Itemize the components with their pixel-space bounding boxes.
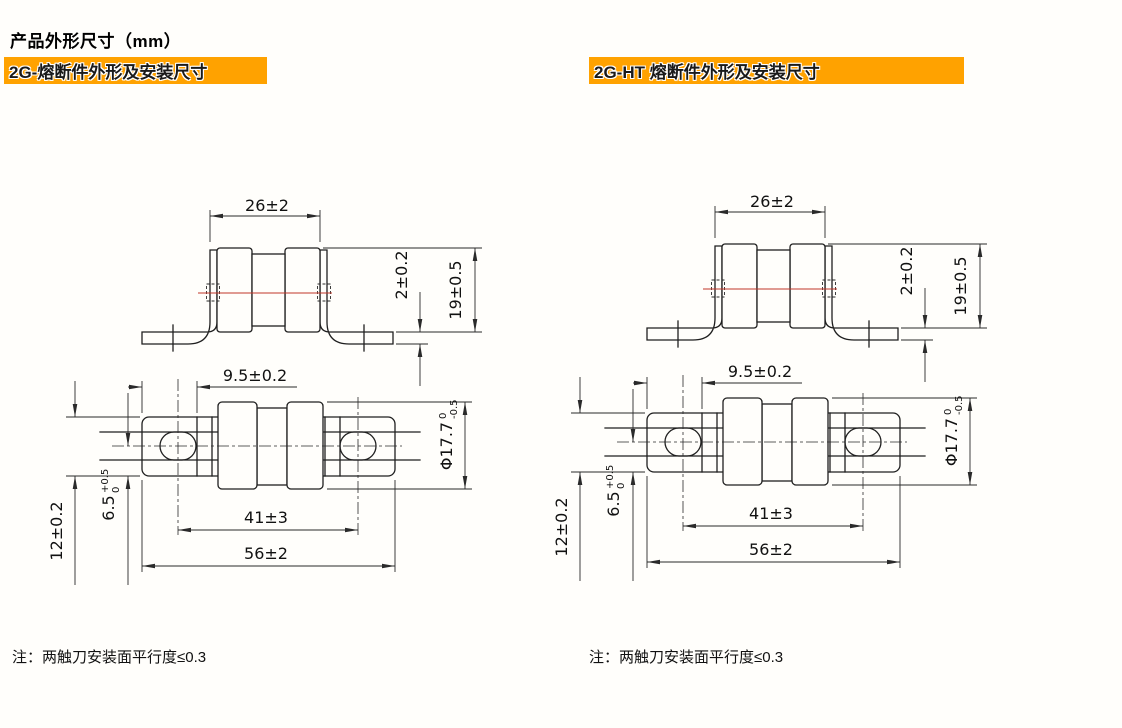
fuse-front-drawing — [142, 248, 393, 351]
fuse-tube — [762, 404, 792, 481]
fuse-body-middle — [757, 250, 790, 322]
dim-label-overall-length: 56±2 — [749, 540, 793, 559]
section-header-2g-ht: 2G-HT 熔断件外形及安装尺寸 — [589, 57, 964, 84]
dim-label-hole-span: 41±3 — [244, 508, 288, 527]
fuse-end-cap-right — [285, 248, 320, 332]
dim-label-hole-edge-offset: 9.5±0.2 — [728, 362, 792, 381]
dim-label-hole-span: 41±3 — [749, 504, 793, 523]
svg-text:0: 0 — [616, 483, 627, 489]
svg-text:0: 0 — [111, 487, 122, 493]
svg-text:6.5: 6.5 — [604, 491, 623, 516]
dim-label-hole-center-offset: 6.5 +0.5 0 — [604, 465, 627, 517]
bracket-blade-right — [320, 250, 393, 344]
dim-label-hole-edge-offset: 9.5±0.2 — [223, 366, 287, 385]
dim-label-body-width: 26±2 — [750, 192, 794, 211]
dim-label-blade-thickness: 2±0.2 — [392, 250, 411, 299]
dim-label-diameter: Φ17.7 0 -0.5 — [437, 399, 460, 470]
dim-label-blade-thickness: 2±0.2 — [897, 246, 916, 295]
section-header-2g: 2G-熔断件外形及安装尺寸 — [4, 57, 267, 84]
section-header-2g-label: 2G-熔断件外形及安装尺寸 — [9, 58, 207, 83]
svg-text:0: 0 — [438, 413, 449, 419]
dim-label-height: 19±0.5 — [446, 260, 465, 319]
svg-text:+0.5: +0.5 — [605, 465, 616, 489]
svg-text:-0.5: -0.5 — [449, 399, 460, 419]
fuse-ring-left — [218, 402, 257, 489]
note-2g: 注：两触刀安装面平行度≤0.3 — [12, 646, 206, 667]
dim-label-hole-center-offset: 6.5 +0.5 0 — [99, 469, 122, 521]
bracket-blade-right — [825, 246, 898, 340]
fuse-tube — [257, 408, 287, 485]
fuse-ring-right — [287, 402, 323, 489]
fuse-end-cap-right — [790, 244, 825, 328]
svg-text:Φ17.7: Φ17.7 — [942, 418, 961, 466]
dim-label-diameter: Φ17.7 0 -0.5 — [942, 395, 965, 466]
svg-text:+0.5: +0.5 — [100, 469, 111, 493]
section-header-2g-ht-label: 2G-HT 熔断件外形及安装尺寸 — [594, 58, 820, 83]
top-view: 9.5±0.2 Φ17.7 0 -0.5 41±3 56±2 — [555, 349, 995, 599]
svg-text:0: 0 — [943, 409, 954, 415]
note-2g-ht: 注：两触刀安装面平行度≤0.3 — [589, 646, 783, 667]
svg-text:Φ17.7: Φ17.7 — [437, 422, 456, 470]
bracket-blade-left — [142, 250, 217, 344]
fuse-front-drawing — [647, 244, 898, 347]
page-title: 产品外形尺寸（mm） — [10, 27, 181, 52]
fuse-ring-left — [723, 398, 762, 485]
fuse-body-middle — [252, 254, 285, 326]
dim-label-blade-width: 12±0.2 — [552, 497, 571, 556]
svg-text:6.5: 6.5 — [99, 495, 118, 520]
top-view: 9.5±0.2 Φ17.7 0 -0.5 41±3 56±2 — [50, 353, 490, 603]
dim-label-height: 19±0.5 — [951, 256, 970, 315]
fuse-end-cap-left — [217, 248, 252, 332]
dim-label-blade-width: 12±0.2 — [47, 501, 66, 560]
fuse-ring-right — [792, 398, 828, 485]
svg-text:-0.5: -0.5 — [954, 395, 965, 415]
dim-label-overall-length: 56±2 — [244, 544, 288, 563]
dim-label-body-width: 26±2 — [245, 196, 289, 215]
bracket-blade-left — [647, 246, 722, 340]
fuse-end-cap-left — [722, 244, 757, 328]
